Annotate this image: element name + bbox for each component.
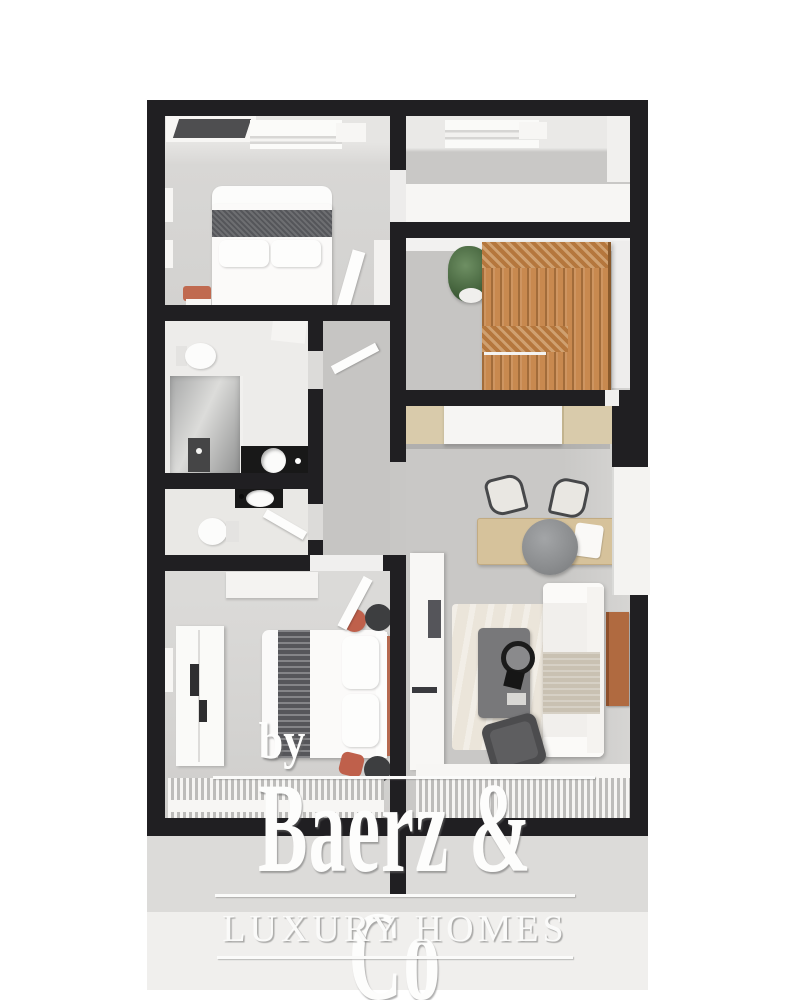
- bedroom-top-wall-shelf: [374, 240, 390, 306]
- wall-bedroom-bottom-top-a: [147, 555, 310, 571]
- watermark-tagline: LUXURY HOMES: [175, 910, 615, 948]
- shower-drain: [196, 448, 202, 454]
- closet-door-gap: [605, 390, 619, 406]
- coffee-table-tray: [507, 693, 526, 705]
- bed-top-pillow-left: [219, 240, 269, 267]
- kitchen-cabinet-right: [562, 400, 612, 444]
- left-window-sliver-1: [165, 188, 173, 222]
- wc-door-gap: [308, 504, 323, 540]
- bathroom-door-gap: [308, 351, 323, 389]
- window-glass-top: [173, 119, 251, 138]
- wall-bedroom-top-bottom: [147, 305, 406, 321]
- bed-bottom-pillow-upper: [342, 636, 379, 689]
- kitchen-floor-shadow: [406, 444, 610, 449]
- closet-right-window: [612, 241, 630, 388]
- sideboard: [606, 612, 629, 706]
- wall-pillar-right: [612, 403, 630, 467]
- entry-shoe-cabinet: [406, 184, 630, 225]
- bathroom-faucet: [295, 458, 301, 464]
- plant-pot: [459, 288, 483, 303]
- bed-bottom-pillow-lower: [342, 694, 379, 747]
- wall-closet-bottom-a: [390, 390, 605, 406]
- floor-plan-photo: by Baerz & Co LUXURY HOMES: [0, 0, 790, 1000]
- bed-top-runner: [212, 210, 332, 237]
- pouf-gray-top: [365, 604, 392, 631]
- kitchen-counter: [444, 400, 562, 444]
- round-side-table: [522, 519, 578, 575]
- wc-sink: [246, 490, 274, 507]
- sofa: [543, 583, 604, 757]
- wall-bath-right-c: [308, 540, 323, 555]
- watermark-rule-middle: [215, 894, 575, 897]
- hallway-opening-floor: [390, 462, 406, 557]
- toilet-wc: [198, 518, 240, 546]
- wall-bedroom-entry-upper: [390, 100, 406, 170]
- right-wall-window: [612, 467, 650, 595]
- wc-faucet: [239, 494, 244, 499]
- wall-bath-divider: [147, 473, 323, 489]
- wall-bedroom-bottom-top-b: [383, 555, 406, 571]
- bed-top: [207, 186, 337, 314]
- ceiling-light-box: [336, 123, 366, 142]
- wardrobe-hanging-rail: [484, 352, 546, 355]
- sofa-throw: [543, 652, 600, 714]
- shower-tray: [188, 438, 210, 472]
- watermark-rule-bottom: [217, 956, 573, 959]
- ceiling-vent: [250, 120, 342, 149]
- toilet-bathroom-bowl: [185, 343, 216, 369]
- wardrobe-mid-shelf: [482, 326, 568, 352]
- watermark-brand: Baerz & Co: [221, 764, 569, 1000]
- wardrobe-handle-lower: [199, 700, 207, 722]
- toilet-bathroom: [176, 343, 216, 369]
- entry-ceiling-light: [519, 122, 547, 139]
- wall-bedroom-entry-lower: [390, 232, 406, 462]
- bathroom-sink: [261, 448, 286, 473]
- wall-outer-left: [147, 100, 165, 836]
- left-window-sliver-2: [165, 240, 173, 268]
- tall-cabinet: [410, 553, 444, 770]
- bedroom-bottom-shelf: [226, 572, 318, 598]
- toilet-wc-bowl: [198, 518, 227, 545]
- entry-right-window: [607, 116, 630, 182]
- wall-entry-closet: [390, 222, 648, 238]
- tall-cabinet-handle: [428, 600, 441, 638]
- wardrobe-top-shelf: [482, 242, 608, 268]
- wardrobe-handle-upper: [190, 664, 199, 696]
- bedroom-bottom-door-threshold: [310, 555, 383, 571]
- left-window-sliver-3: [165, 648, 173, 692]
- toilet-wc-tank: [226, 521, 239, 542]
- wardrobe-white: [176, 626, 224, 766]
- tall-cabinet-plinth: [412, 687, 437, 693]
- wardrobe-white-seam: [198, 630, 200, 762]
- bed-top-pillow-right: [271, 240, 321, 267]
- wall-bath-right-a: [308, 321, 323, 351]
